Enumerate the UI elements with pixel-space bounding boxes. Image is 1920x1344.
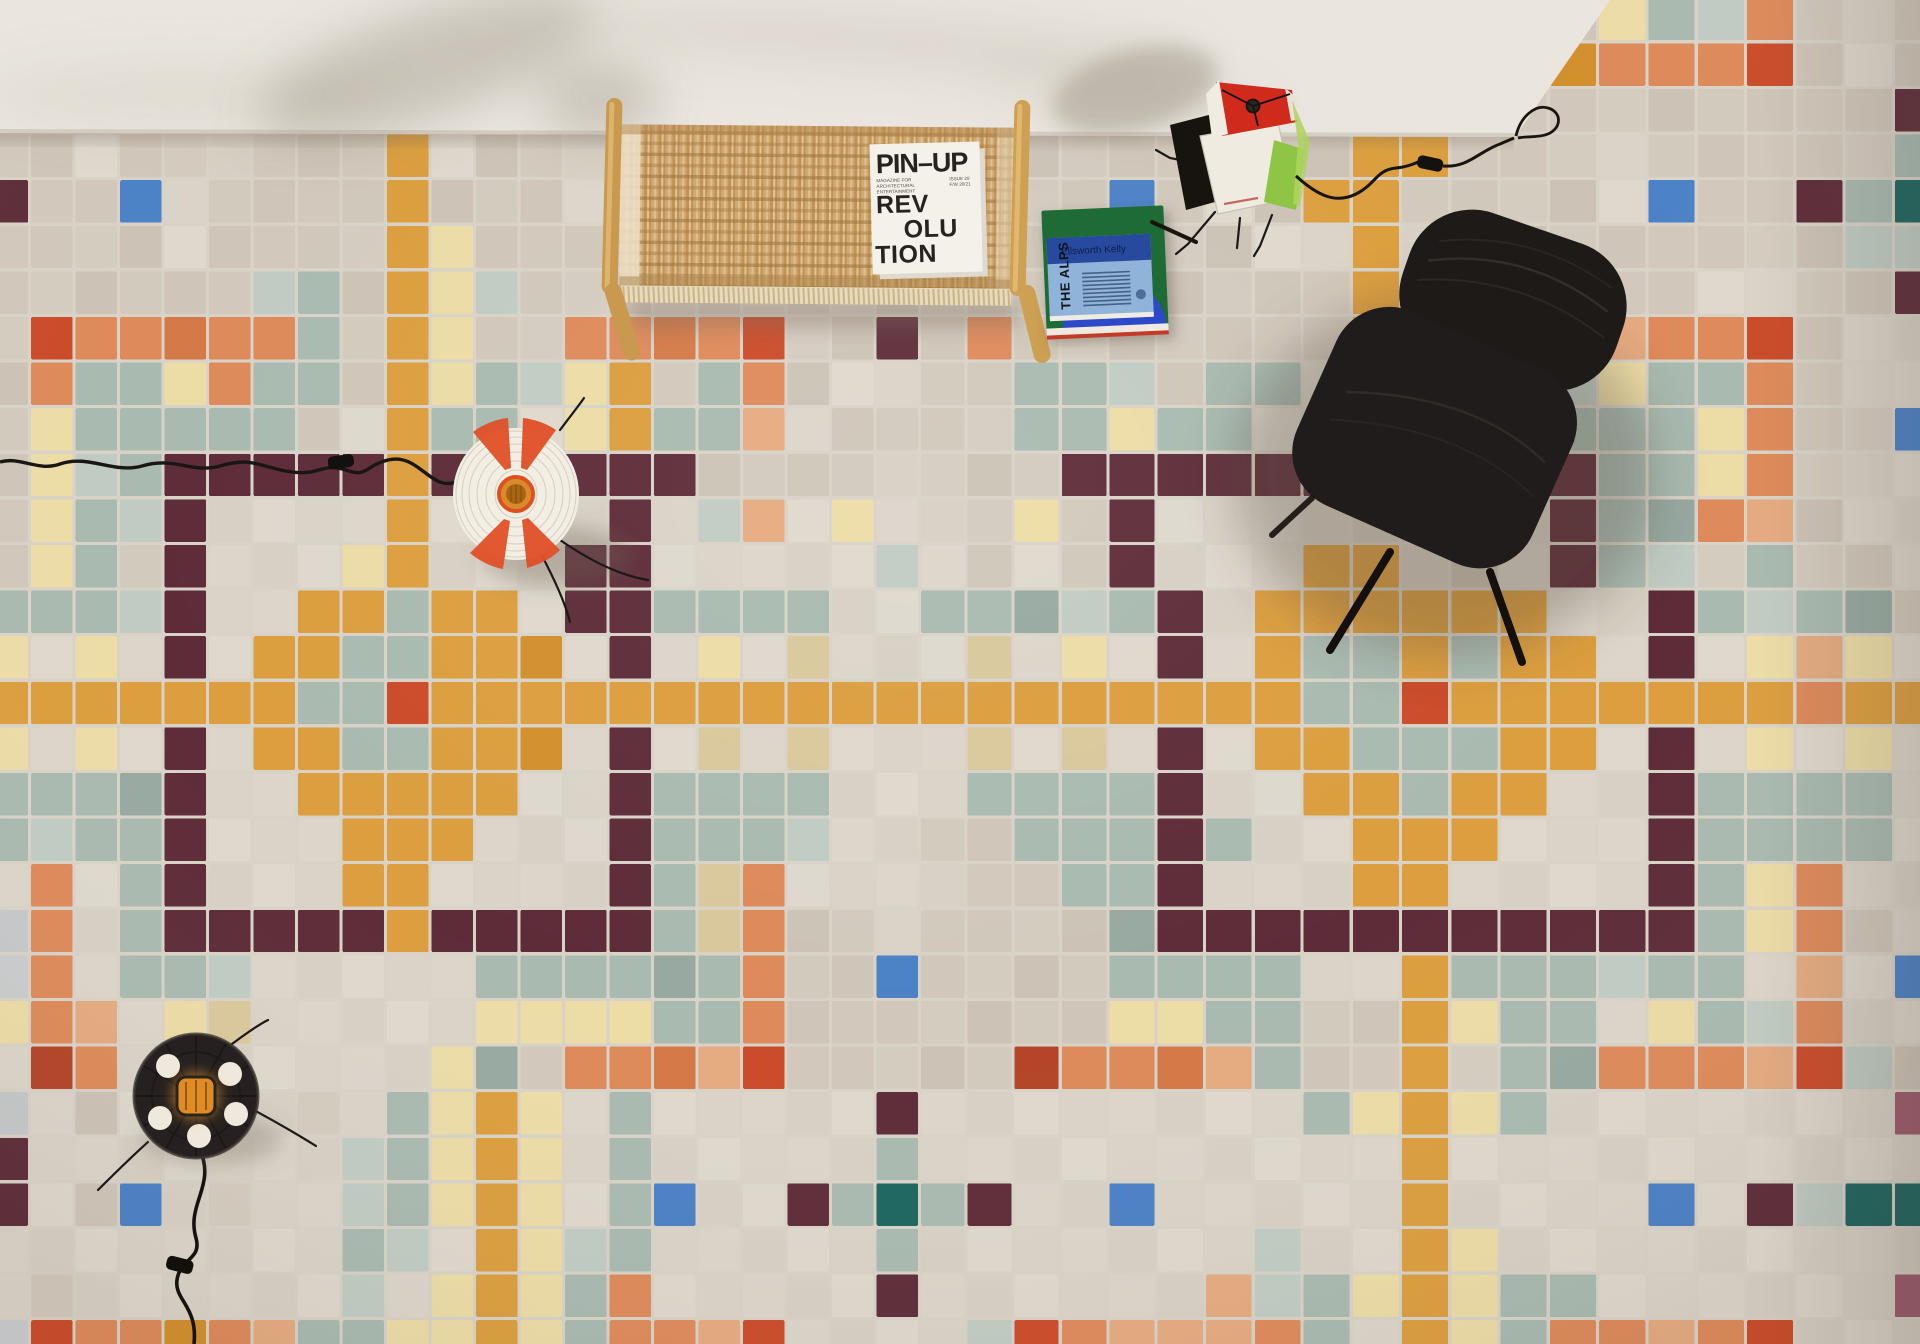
svg-text:TION: TION	[875, 240, 937, 270]
svg-text:THE ALPS: THE ALPS	[1056, 241, 1074, 309]
svg-text:F/W 20/21: F/W 20/21	[949, 181, 971, 187]
svg-text:PIN–UP: PIN–UP	[876, 147, 969, 179]
